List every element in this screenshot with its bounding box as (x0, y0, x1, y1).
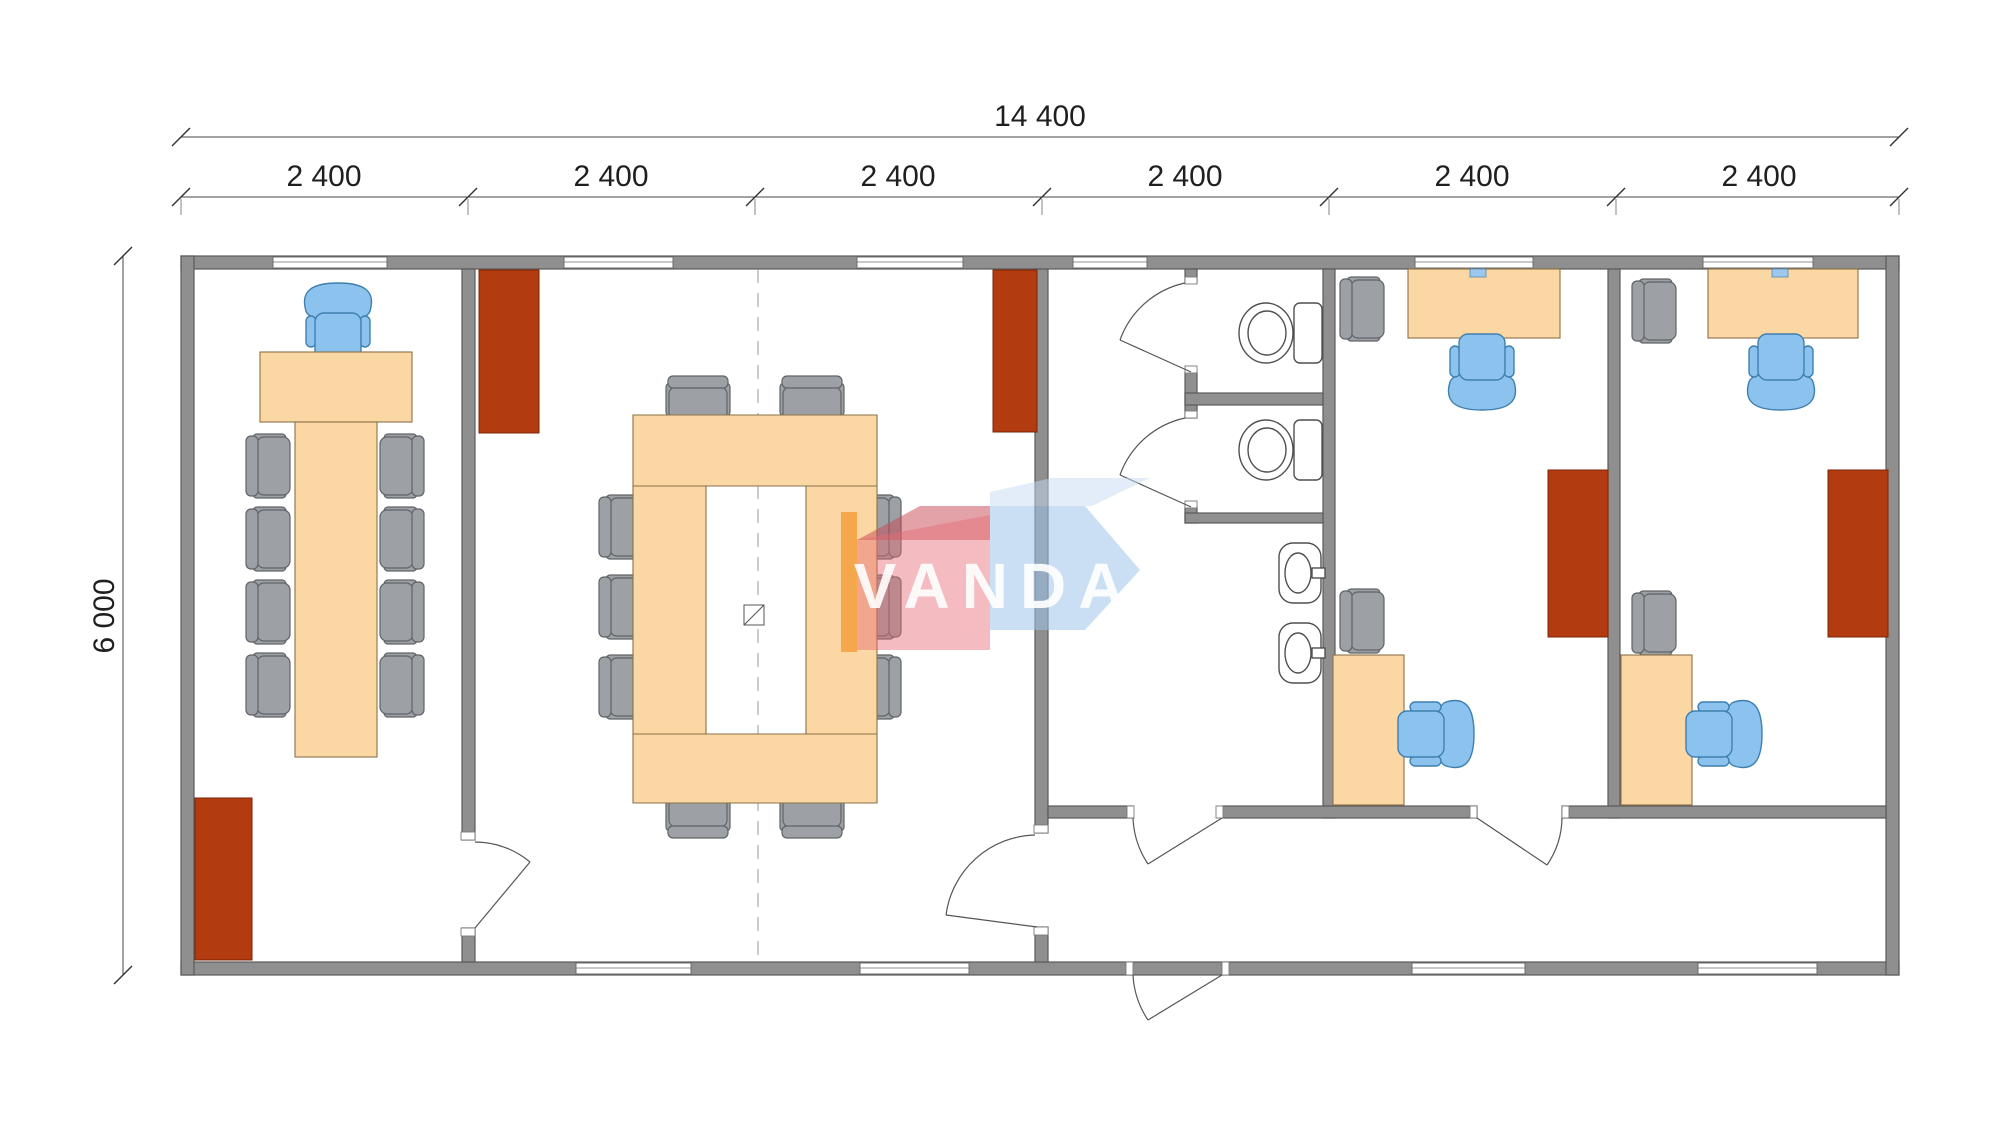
window (1698, 963, 1817, 974)
side-chair (246, 434, 290, 498)
desk (1333, 655, 1404, 805)
side-chair (246, 580, 290, 644)
sanitary-area (1239, 303, 1325, 683)
sink (1279, 543, 1325, 603)
desk (1708, 269, 1858, 338)
window (860, 963, 969, 974)
cabinet (479, 270, 539, 433)
window (564, 257, 673, 268)
wall-wc-divider (1185, 393, 1323, 405)
toilet (1239, 420, 1322, 480)
desk (1621, 655, 1692, 805)
watermark-blue-roof (990, 478, 1150, 506)
radiator-cabinet (1548, 470, 1608, 637)
door (1470, 806, 1569, 865)
side-chair (380, 507, 424, 571)
desk (1408, 269, 1560, 338)
sink (1279, 623, 1325, 683)
floor-plan: 14 400 2 400 2 400 2 400 2 400 2 400 2 4… (0, 0, 2000, 1147)
wall-hall-top (1562, 806, 1886, 818)
office-chair (304, 283, 371, 359)
dim-segment-2: 2 400 (573, 160, 648, 193)
side-chair (780, 376, 844, 420)
door (946, 825, 1048, 935)
monitor (1470, 269, 1486, 277)
column-symbol (744, 605, 764, 625)
side-chair (246, 653, 290, 717)
side-chair (666, 376, 730, 420)
door (1127, 806, 1223, 864)
meeting-room (195, 283, 424, 960)
cabinet (195, 798, 252, 960)
side-chair (1340, 589, 1384, 653)
dim-height: 6 000 (88, 578, 121, 653)
wall-hall-top (1048, 806, 1133, 818)
dim-segment-6: 2 400 (1721, 160, 1796, 193)
dim-total-width: 14 400 (994, 100, 1086, 133)
door (1120, 411, 1197, 508)
side-chair (1632, 591, 1676, 655)
side-chair (246, 507, 290, 571)
monitor (1772, 269, 1788, 277)
side-chair (1632, 279, 1676, 343)
toilet (1239, 303, 1322, 363)
dim-segment-1: 2 400 (286, 160, 361, 193)
radiator-cabinet (1828, 470, 1888, 637)
side-chair (1340, 277, 1384, 341)
office-2 (1621, 269, 1888, 805)
office-chair (1686, 700, 1762, 767)
window (1415, 257, 1533, 268)
office-1 (1333, 269, 1608, 805)
side-chair (380, 653, 424, 717)
window (857, 257, 963, 268)
dim-segment-5: 2 400 (1434, 160, 1509, 193)
wall-top (181, 256, 1899, 269)
office-chair (1747, 334, 1814, 410)
window (576, 963, 691, 974)
window (1703, 257, 1813, 268)
floor-plan-canvas: 14 400 2 400 2 400 2 400 2 400 2 400 2 4… (0, 0, 2000, 1147)
wall-wc-bottom (1185, 513, 1323, 523)
wall-office1-office2 (1608, 269, 1620, 818)
watermark-text: VANDA (854, 550, 1137, 622)
window (1073, 257, 1147, 268)
window (273, 257, 387, 268)
cabinet (993, 270, 1037, 432)
meeting-table (295, 422, 377, 757)
wall-bottom (181, 962, 1899, 975)
side-chair (380, 580, 424, 644)
dim-segment-4: 2 400 (1147, 160, 1222, 193)
door (1120, 277, 1197, 373)
dim-ticks (172, 188, 1908, 215)
dim-segment-3: 2 400 (860, 160, 935, 193)
door (461, 832, 530, 936)
meeting-table-head (260, 352, 412, 422)
office-chair (1398, 700, 1474, 767)
window (1412, 963, 1525, 974)
wall-left (181, 256, 194, 975)
wall-hall-top (1222, 806, 1477, 818)
wall-room1-room2 (462, 269, 475, 840)
office-chair (1448, 334, 1515, 410)
side-chair (380, 434, 424, 498)
